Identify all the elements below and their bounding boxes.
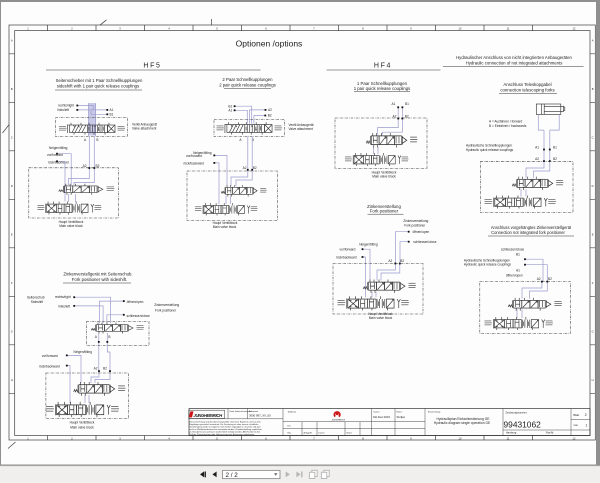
svg-text:vor/forward: vor/forward: [339, 248, 355, 252]
svg-text:öffnen/open: öffnen/open: [127, 300, 144, 304]
svg-text:B: B: [592, 87, 594, 91]
svg-text:A2: A2: [535, 157, 539, 161]
svg-text:A1: A1: [535, 145, 539, 149]
svg-text:Haupt Ventilblock: Haupt Ventilblock: [70, 420, 95, 424]
svg-text:Fork positioner: Fork positioner: [155, 309, 177, 313]
svg-text:Fork positioner: Fork positioner: [370, 209, 399, 214]
svg-text:C: C: [592, 135, 594, 139]
svg-text:vor/forward: vor/forward: [186, 154, 202, 158]
svg-text:B2: B2: [553, 157, 557, 161]
svg-text:rück/backward: rück/backward: [39, 365, 60, 369]
svg-text:B2: B2: [268, 114, 272, 118]
svg-text:Valve attachment: Valve attachment: [132, 126, 157, 130]
svg-text:Zinkenverstellung: Zinkenverstellung: [154, 303, 179, 307]
svg-text:öffnen/open: öffnen/open: [413, 230, 430, 234]
svg-text:Blatt: Blatt: [574, 413, 580, 417]
svg-text:A: A: [592, 38, 594, 42]
svg-text:G: G: [592, 329, 594, 333]
svg-text:Valve attachment: Valve attachment: [289, 127, 314, 131]
svg-text:Hydraulischer Anschluss von ni: Hydraulischer Anschluss von nicht integr…: [456, 55, 572, 60]
svg-text:connection telescoping forks: connection telescoping forks: [500, 88, 554, 93]
svg-text:A2: A2: [243, 166, 247, 170]
svg-text:Name: Name: [347, 433, 353, 435]
svg-text:C: C: [11, 135, 13, 139]
svg-text:B1: B1: [516, 252, 520, 256]
svg-text:A2: A2: [388, 259, 392, 263]
svg-text:Seitenschieber mit 1 Paar Schn: Seitenschieber mit 1 Paar Schnellkupplun…: [56, 78, 143, 83]
svg-text:A1: A1: [228, 109, 232, 113]
svg-text:B = Einfahren / backwards: B = Einfahren / backwards: [489, 124, 527, 128]
svg-text:3000 997_XX_00: 3000 997_XX_00: [249, 414, 271, 418]
svg-text:Main valve block: Main valve block: [59, 224, 83, 228]
svg-text:Okt.Dez.2004: Okt.Dez.2004: [373, 415, 391, 419]
svg-text:B2: B2: [548, 277, 552, 281]
svg-text:D: D: [592, 184, 594, 188]
svg-text:Connection not integrated fork: Connection not integrated fork positione…: [491, 230, 565, 235]
svg-text:Dokument: Dokument: [249, 410, 259, 413]
svg-text:A: A: [11, 38, 13, 42]
svg-text:Zinkenverstellgerät mit Seiten: Zinkenverstellgerät mit Seitenschub.: [63, 271, 132, 276]
svg-text:B: B: [11, 87, 13, 91]
svg-text:A2: A2: [94, 367, 98, 371]
svg-text:A1: A1: [391, 102, 395, 106]
svg-text:Hydraulic quick release coupli: Hydraulic quick release couplings: [464, 262, 512, 266]
svg-text:A2: A2: [83, 164, 87, 168]
svg-text:H: H: [11, 378, 13, 382]
svg-text:vor/forward: vor/forward: [42, 354, 58, 358]
svg-text:JUNGHEINRICH: JUNGHEINRICH: [332, 420, 346, 422]
svg-text:2 / 2: 2 / 2: [226, 472, 239, 479]
svg-text:links/left: links/left: [58, 304, 70, 308]
svg-text:Optionen /options: Optionen /options: [236, 38, 303, 48]
svg-text:JUNGHEINRICH: JUNGHEINRICH: [193, 413, 223, 418]
svg-text:2 pair quick release couplings: 2 pair quick release couplings: [219, 83, 276, 88]
svg-text:Fork positioner with sideshift: Fork positioner with sideshift.: [72, 277, 127, 282]
svg-text:Hydraulic diagram single opera: Hydraulic diagram single operation GE: [434, 421, 491, 425]
svg-text:B: B: [96, 138, 98, 142]
svg-text:Datum: Datum: [319, 432, 325, 435]
svg-text:B: B: [108, 335, 110, 339]
svg-text:A2: A2: [268, 108, 272, 112]
svg-text:E: E: [592, 232, 594, 236]
svg-text:A2: A2: [393, 114, 397, 118]
svg-text:1: 1: [586, 423, 588, 427]
svg-text:Zeichnungsnummer: Zeichnungsnummer: [506, 412, 527, 415]
svg-text:D: D: [11, 184, 13, 188]
svg-text:Hydraulic connection of not in: Hydraulic connection of not integrated a…: [466, 61, 563, 66]
svg-text:Seitenschub: Seitenschub: [27, 296, 45, 300]
svg-text:Datum: Datum: [374, 410, 380, 413]
svg-text:Beschreibung: Beschreibung: [428, 411, 440, 413]
svg-text:Main valve block: Main valve block: [213, 225, 237, 229]
svg-text:rechts/right: rechts/right: [55, 295, 71, 299]
svg-text:Anlage/N: Anlage/N: [304, 432, 313, 435]
svg-text:Neigen/tilting: Neigen/tilting: [359, 242, 378, 246]
svg-text:Anschluss Teleskopgabel: Anschluss Teleskopgabel: [503, 82, 551, 87]
svg-text:Fax/Nr: Fax/Nr: [546, 432, 554, 435]
svg-text:B1: B1: [405, 102, 409, 106]
svg-text:Main valve block: Main valve block: [372, 175, 396, 179]
svg-text:A1: A1: [516, 269, 520, 273]
svg-text:B2: B2: [400, 259, 404, 263]
svg-text:A1: A1: [110, 108, 114, 112]
svg-text:schliessen/close: schliessen/close: [413, 240, 436, 244]
svg-text:H: H: [592, 378, 594, 382]
svg-text:B2: B2: [96, 164, 100, 168]
svg-text:Name: Name: [397, 411, 403, 413]
svg-text:Hydraulic quick release coupli: Hydraulic quick release couplings: [466, 148, 514, 152]
svg-text:Hydraulische Schnellkupplungen: Hydraulische Schnellkupplungen: [466, 143, 512, 147]
svg-text:öffnen/open: öffnen/open: [506, 274, 523, 278]
svg-text:Fork positioner: Fork positioner: [404, 223, 426, 227]
svg-text:Main valve block: Main valve block: [70, 426, 94, 430]
svg-text:B1: B1: [110, 113, 114, 117]
svg-text:Hamburg: Hamburg: [506, 431, 517, 434]
svg-text:G: G: [11, 329, 13, 333]
svg-text:Teilebene: Teilebene: [288, 411, 297, 413]
svg-text:schliessen/close: schliessen/close: [127, 314, 150, 318]
svg-text:Fall der Patenterteilung oder: Fall der Patenterteilung oder Gebrauchsm…: [190, 433, 256, 436]
svg-text:schliessen/close: schliessen/close: [501, 247, 524, 251]
svg-text:B2: B2: [405, 114, 409, 118]
svg-text:rechts/right: rechts/right: [58, 104, 74, 108]
svg-text:rück/backward: rück/backward: [336, 256, 357, 260]
svg-text:B1: B1: [553, 145, 557, 149]
svg-text:Neigen/tilting: Neigen/tilting: [74, 350, 93, 354]
svg-text:sideshift with 1 pair quick re: sideshift with 1 pair quick release coup…: [57, 84, 139, 89]
svg-text:Stufjen: Stufjen: [397, 415, 406, 419]
svg-text:B2: B2: [253, 166, 257, 170]
svg-text:Ers.: Ers.: [288, 426, 292, 428]
svg-text:E: E: [11, 232, 13, 236]
svg-text:Sideshift: Sideshift: [31, 300, 43, 304]
svg-text:Main valve block: Main valve block: [369, 316, 393, 320]
svg-text:2 Paar Schnellkupplungen: 2 Paar Schnellkupplungen: [222, 77, 273, 82]
svg-text:links/left: links/left: [57, 108, 69, 112]
svg-text:B2: B2: [103, 367, 107, 371]
svg-text:HF4: HF4: [374, 62, 392, 69]
svg-text:2: 2: [585, 413, 587, 417]
svg-text:A2: A2: [537, 277, 541, 281]
svg-text:von: von: [574, 423, 579, 427]
svg-text:Neigen/tilting: Neigen/tilting: [49, 146, 68, 150]
svg-text:99431062: 99431062: [504, 420, 542, 430]
svg-text:rück/backward: rück/backward: [183, 162, 204, 166]
svg-text:1 pair quick release couplings: 1 pair quick release couplings: [354, 86, 411, 91]
svg-text:HF5: HF5: [143, 62, 161, 69]
svg-text:A = Ausfahren / forward: A = Ausfahren / forward: [489, 120, 522, 124]
